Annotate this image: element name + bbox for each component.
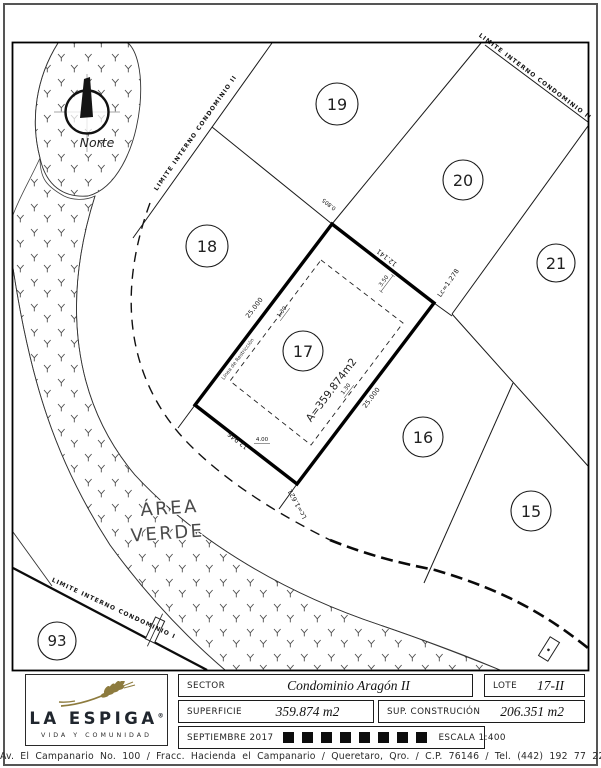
lot-15: 15 [511,491,551,531]
corner-ext-d [178,405,195,428]
logo-tagline: VIDA Y COMUNIDAD [41,732,152,739]
sup-construccion-value: 206.351 m2 [480,704,584,720]
superficie-value: 359.874 m2 [242,704,373,720]
lote-label: LOTE [485,681,517,691]
north-label: Norte [80,135,115,150]
dim-corner-e: Lc=1.278 [436,267,461,299]
wheat-icon [57,681,137,709]
lote-box: LOTE 17-II [484,674,585,697]
lote-value: 17-II [517,678,584,694]
superficie-box: SUPERFICIE 359.874 m2 [178,700,374,723]
sector-box: SECTOR Condominio Aragón II [178,674,473,697]
lot-20: 20 [443,160,483,200]
registered-mark: ® [158,713,164,720]
svg-text:17: 17 [293,342,313,361]
limite-ii-left-label: LIMITE INTERNO CONDOMINIO II [153,74,239,192]
sector-value: Condominio Aragón II [225,678,472,694]
logo-box: LA ESPIGA® VIDA Y COMUNIDAD [25,674,168,746]
svg-text:19: 19 [327,95,347,114]
lot-17: 17 [283,331,323,371]
boundary-20-21 [452,126,588,314]
svg-text:18: 18 [197,237,217,256]
lot-21: 21 [537,244,575,282]
svg-text:93: 93 [47,632,66,650]
sector-label: SECTOR [179,681,225,691]
limite-ii-left-line [133,43,272,238]
sup-construccion-box: SUP. CONSTRUCIÓN 206.351 m2 [378,700,585,723]
corner-ext-b [434,303,452,316]
lot-19: 19 [316,83,358,125]
escala-box: SEPTIEMBRE 2017 ESCALA 1:400 [178,726,485,749]
site-plan-drawing: 25.000 12.141 25.000 12.946 Lc=1.278 Lc=… [0,0,601,768]
lot-16: 16 [403,417,443,457]
limite-ii-right-label: LIMITE INTERNO CONDOMINIO II [477,32,592,121]
dim-setback-sw: 4.00 [254,437,270,444]
dim-corner-s: Lc=1.621 [286,488,308,521]
logo-name: LA ESPIGA® [29,711,163,728]
scale-bar [283,732,427,743]
boundary-21-15 [452,314,588,466]
fecha-label: SEPTIEMBRE 2017 [179,733,273,743]
sup-construccion-label: SUP. CONSTRUCIÓN [379,707,480,717]
svg-text:4.00: 4.00 [256,437,269,443]
superficie-label: SUPERFICIE [179,707,242,717]
svg-text:16: 16 [413,428,433,447]
site-plan-page: { "map": { "north_label": "Norte", "area… [0,0,601,768]
boundary-18-19 [212,127,332,224]
svg-text:21: 21 [546,254,566,273]
svg-text:15: 15 [521,502,541,521]
svg-text:20: 20 [453,171,473,190]
gate-symbol-right [539,637,560,661]
limite-ii-right-line [485,45,588,122]
lot-18: 18 [186,225,228,267]
lot-93: 93 [38,622,76,660]
address-footer: Av. El Campanario No. 100 / Fracc. Hacie… [0,751,601,762]
escala-label: ESCALA 1:400 [438,733,505,743]
svg-text:ÁREA: ÁREA [140,495,200,521]
boundary-16-15 [424,383,513,583]
dim-top-offset: 0.805 [321,196,337,211]
